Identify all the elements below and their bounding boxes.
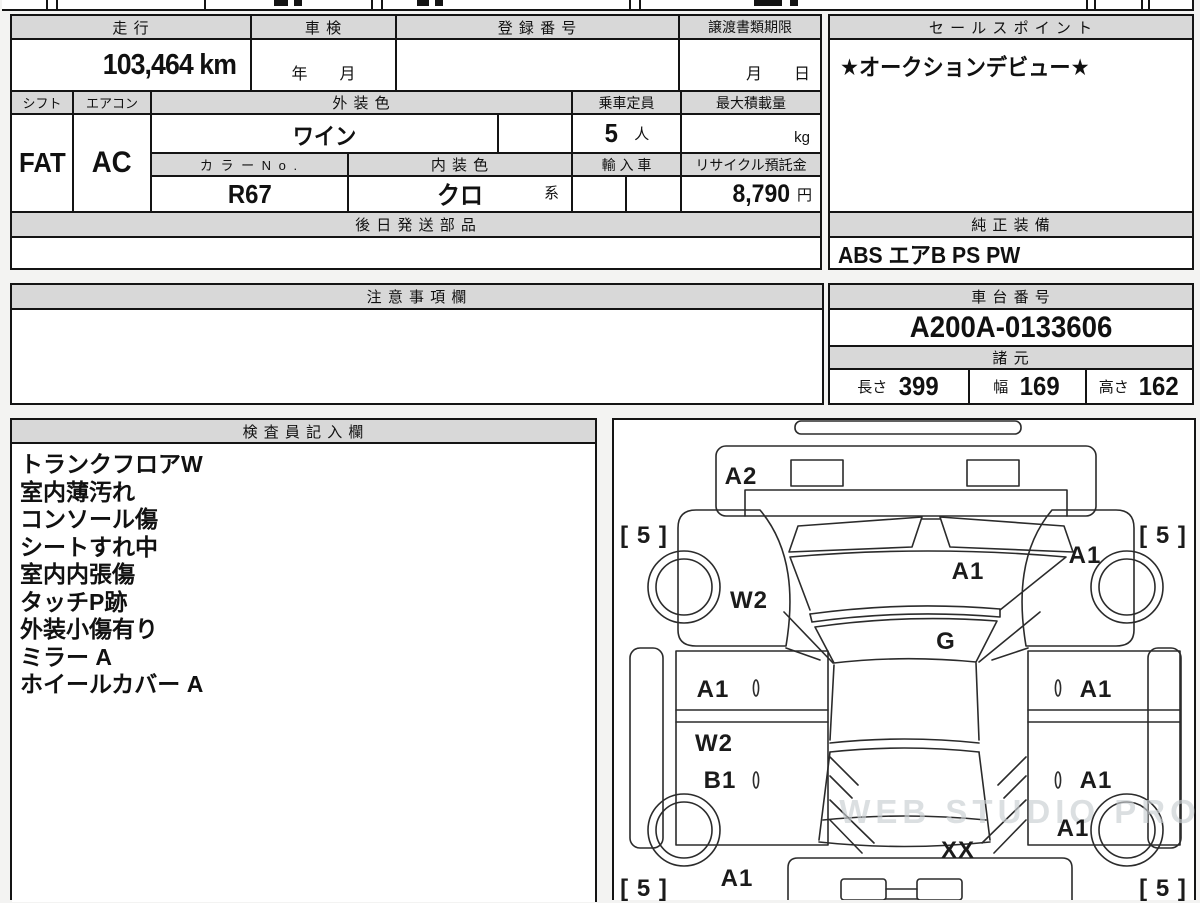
damage-code-label: A1	[1080, 767, 1113, 795]
damage-code-label: A1	[697, 676, 730, 704]
registration-value	[397, 40, 680, 92]
mileage-header: 走 行	[12, 16, 252, 40]
transfer-docs-header: 譲渡書類期限	[680, 16, 822, 40]
exterior-color-header: 外 装 色	[152, 92, 573, 115]
damage-code-label: G	[936, 628, 956, 656]
sales-point-header: セ ー ル ス ポ イ ン ト	[830, 16, 1194, 40]
sales-point-table: セ ー ル ス ポ イ ン ト ★オークションデビュー★ 純 正 装 備 ABS…	[828, 14, 1194, 270]
inspector-note: シートすれ中	[20, 534, 158, 562]
color-no-value: R67	[152, 177, 349, 213]
sales-point-value: ★オークションデビュー★	[830, 40, 1194, 213]
inspection-header: 車 検	[252, 16, 397, 40]
damage-diagram: WEB STUDIO PRO A2[ 5 ][ 5 ]A1A1W2GA1A1W2…	[612, 418, 1196, 900]
max-load-value: kg	[682, 115, 822, 154]
later-shipping-header: 後 日 発 送 部 品	[12, 213, 822, 238]
equipment-value: ABS エアB PS PW	[830, 238, 1194, 270]
inspector-note: 外装小傷有り	[20, 616, 158, 644]
aircon-header: エアコン	[74, 92, 152, 115]
exterior-color-value: ワイン	[152, 115, 499, 154]
recycle-value: 8,790円	[682, 177, 822, 213]
capacity-header: 乗車定員	[573, 92, 682, 115]
inspector-note: ホイールカバー A	[20, 671, 203, 699]
interior-color-suffix: 系	[544, 182, 559, 203]
notes-header: 注 意 事 項 欄	[12, 285, 824, 310]
exterior-color-extra	[499, 115, 573, 154]
import-value-2	[627, 177, 682, 213]
chassis-value: A200A-0133606	[830, 310, 1194, 347]
dimensions-header: 諸 元	[830, 347, 1194, 370]
transfer-docs-value: 月 日	[680, 40, 822, 92]
damage-code-label: A1	[721, 865, 754, 893]
spec-table: シフト エアコン 外 装 色 乗車定員 最大積載量 FAT AC ワイン 5人 …	[10, 90, 822, 270]
chassis-table: 車 台 番 号 A200A-0133606 諸 元 長さ399 幅169 高さ1…	[828, 283, 1194, 405]
damage-code-label: [ 5 ]	[620, 875, 668, 903]
damage-code-label: [ 5 ]	[1139, 522, 1187, 550]
import-value-1	[573, 177, 627, 213]
dimension-height: 高さ162	[1087, 370, 1194, 405]
damage-code-label: A1	[1057, 815, 1090, 843]
top-cutoff-row	[2, 0, 1194, 11]
diagram-labels: A2[ 5 ][ 5 ]A1A1W2GA1A1W2B1A1A1XXA1[ 5 ]…	[614, 420, 1194, 900]
damage-code-label: A1	[952, 558, 985, 586]
damage-code-label: XX	[941, 837, 975, 865]
main-info-table: 走 行 車 検 登 録 番 号 譲渡書類期限 103,464 km 年 月 月 …	[10, 14, 822, 92]
damage-code-label: [ 5 ]	[620, 522, 668, 550]
inspector-note: ミラー A	[20, 644, 112, 672]
damage-code-label: A2	[725, 463, 758, 491]
import-header: 輸 入 車	[573, 154, 682, 177]
damage-code-label: [ 5 ]	[1139, 875, 1187, 903]
interior-color-value: クロ系	[349, 177, 573, 213]
max-load-header: 最大積載量	[682, 92, 822, 115]
inspector-table: 検 査 員 記 入 欄 トランクフロアW室内薄汚れコンソール傷シートすれ中室内内…	[10, 418, 597, 900]
chassis-header: 車 台 番 号	[830, 285, 1194, 310]
mileage-value: 103,464 km	[12, 40, 252, 92]
damage-code-label: A1	[1069, 542, 1102, 570]
shift-header: シフト	[12, 92, 74, 115]
notes-value	[12, 310, 824, 405]
damage-code-label: B1	[704, 767, 737, 795]
damage-code-label: W2	[695, 730, 733, 758]
capacity-value: 5人	[573, 115, 682, 154]
auction-sheet: 走 行 車 検 登 録 番 号 譲渡書類期限 103,464 km 年 月 月 …	[0, 0, 1200, 900]
registration-header: 登 録 番 号	[397, 16, 680, 40]
later-shipping-value	[12, 238, 822, 270]
inspector-notes-list: トランクフロアW室内薄汚れコンソール傷シートすれ中室内内張傷タッチP跡外装小傷有…	[12, 444, 597, 902]
inspector-header: 検 査 員 記 入 欄	[12, 420, 597, 444]
dimension-length: 長さ399	[830, 370, 970, 405]
aircon-value: AC	[74, 115, 152, 213]
inspector-note: タッチP跡	[20, 589, 127, 617]
inspector-note: トランクフロアW	[20, 451, 203, 479]
notes-table: 注 意 事 項 欄	[10, 283, 824, 405]
inspection-value: 年 月	[252, 40, 397, 92]
inspector-note: 室内薄汚れ	[20, 479, 135, 507]
shift-value: FAT	[12, 115, 74, 213]
recycle-header: リサイクル預託金	[682, 154, 822, 177]
equipment-header: 純 正 装 備	[830, 213, 1194, 238]
dimension-width: 幅169	[970, 370, 1087, 405]
damage-code-label: A1	[1080, 676, 1113, 704]
interior-color-header: 内 装 色	[349, 154, 573, 177]
color-no-header: カ ラ ー N o .	[152, 154, 349, 177]
inspector-note: 室内内張傷	[20, 561, 135, 589]
damage-code-label: W2	[730, 587, 768, 615]
inspector-note: コンソール傷	[20, 506, 158, 534]
